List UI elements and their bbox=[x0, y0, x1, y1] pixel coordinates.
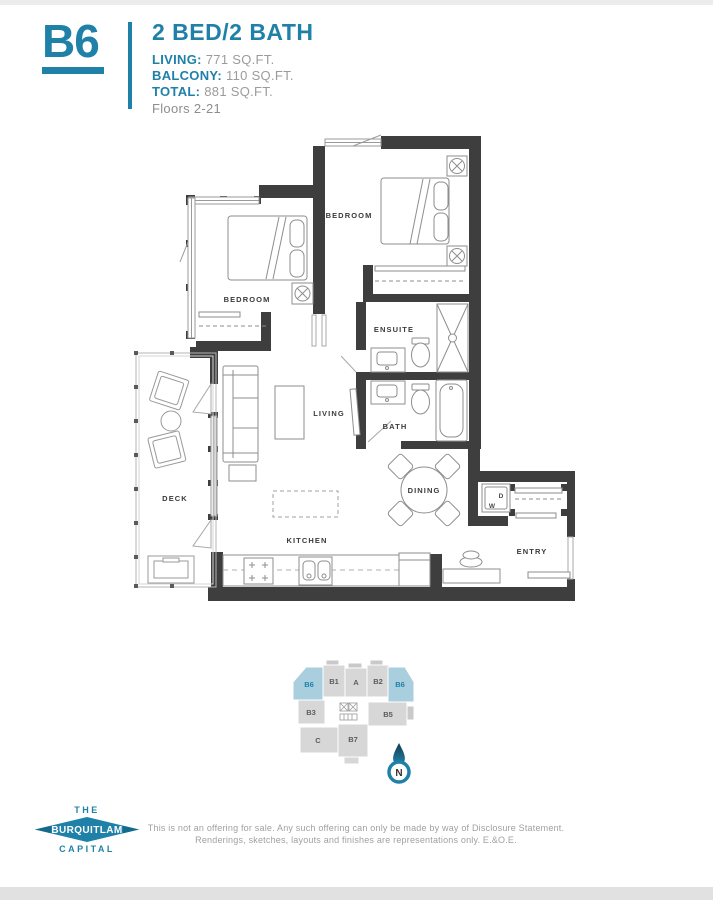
disclaimer-line-2: Renderings, sketches, layouts and finish… bbox=[146, 834, 566, 846]
label-dining: DINING bbox=[408, 486, 441, 495]
deck-door-swing-icon bbox=[193, 520, 211, 548]
keyplan-label-b1: B1 bbox=[329, 677, 339, 686]
fridge-icon bbox=[399, 553, 430, 586]
unit-code-underline bbox=[42, 67, 104, 74]
keyplan-unit-b7-tab bbox=[344, 757, 359, 764]
stat-living: LIVING:771 SQ.FT. bbox=[152, 52, 294, 68]
toilet-icon bbox=[412, 338, 430, 367]
stat-total-label: TOTAL: bbox=[152, 84, 200, 99]
stat-living-label: LIVING: bbox=[152, 52, 202, 67]
ensuite-door-leaf bbox=[341, 356, 356, 372]
keyplan-label-b3: B3 bbox=[306, 708, 316, 717]
unit-stats: LIVING:771 SQ.FT. BALCONY:110 SQ.FT. TOT… bbox=[152, 52, 294, 100]
label-ensuite: ENSUITE bbox=[374, 325, 414, 334]
keyplan-label-b5: B5 bbox=[383, 710, 393, 719]
closet-shelf bbox=[375, 266, 465, 271]
logo-burquitlam: BURQUITLAM bbox=[51, 825, 122, 836]
label-deck: DECK bbox=[162, 494, 188, 503]
stairs-icon bbox=[340, 714, 357, 720]
logo-banner: BURQUITLAM bbox=[35, 816, 139, 843]
header-divider bbox=[128, 22, 132, 109]
label-living: LIVING bbox=[313, 409, 345, 418]
keyplan-label-b7: B7 bbox=[348, 735, 358, 744]
disclaimer-line-1: This is not an offering for sale. Any su… bbox=[146, 822, 566, 834]
bed-icon bbox=[228, 216, 307, 280]
furniture bbox=[199, 156, 570, 586]
toilet-icon bbox=[412, 384, 430, 414]
keyplan-label-b6-left: B6 bbox=[304, 680, 314, 689]
label-dryer: D bbox=[499, 493, 504, 500]
keyplan-core bbox=[340, 703, 357, 720]
stat-balcony: BALCONY:110 SQ.FT. bbox=[152, 68, 294, 84]
disclaimer: This is not an offering for sale. Any su… bbox=[146, 822, 566, 846]
bathtub-icon bbox=[436, 380, 467, 441]
ottoman-icon bbox=[229, 465, 256, 481]
label-bedroom-left: BEDROOM bbox=[224, 295, 271, 304]
keyplan-label-b2: B2 bbox=[373, 677, 383, 686]
coffee-table-icon bbox=[275, 386, 304, 439]
vanity-sink-icon bbox=[371, 381, 405, 404]
bedroom-door-leaf bbox=[322, 315, 326, 346]
nightstand-icon bbox=[447, 246, 467, 266]
floors-range: Floors 2-21 bbox=[152, 101, 221, 116]
label-bath: BATH bbox=[383, 422, 408, 431]
label-washer: W bbox=[489, 503, 496, 510]
stat-total-value: 881 SQ.FT. bbox=[204, 84, 273, 99]
stat-living-value: 771 SQ.FT. bbox=[206, 52, 275, 67]
closet-shelf bbox=[199, 312, 240, 317]
entry-bench bbox=[528, 572, 570, 578]
stat-total: TOTAL:881 SQ.FT. bbox=[152, 84, 294, 100]
stat-balcony-label: BALCONY: bbox=[152, 68, 222, 83]
bed-icon bbox=[381, 178, 449, 244]
stove-icon bbox=[244, 558, 273, 584]
label-kitchen: KITCHEN bbox=[286, 536, 327, 545]
north-label: N bbox=[395, 768, 402, 779]
room-labels: BEDROOM BEDROOM ENSUITE BATH LIVING DECK… bbox=[162, 211, 547, 556]
north-arrow-icon: N bbox=[389, 743, 409, 782]
keyplan-label-c: C bbox=[315, 736, 321, 745]
deck-area bbox=[134, 351, 216, 588]
logo-capital: CAPITAL bbox=[35, 844, 139, 854]
unit-code: B6 bbox=[42, 14, 99, 68]
deck-table-icon bbox=[161, 411, 181, 431]
top-edge-strip bbox=[0, 0, 713, 5]
deck-chair-icon bbox=[148, 431, 187, 469]
keyplan-label-a: A bbox=[353, 678, 359, 687]
label-entry: ENTRY bbox=[517, 547, 548, 556]
brochure-page: B6 2 BED/2 BATH LIVING:771 SQ.FT. BALCON… bbox=[0, 0, 713, 900]
closet-shelf bbox=[516, 513, 556, 518]
console-table-icon bbox=[443, 551, 500, 583]
nightstand-icon bbox=[447, 156, 467, 176]
unit-type-title: 2 BED/2 BATH bbox=[152, 19, 314, 46]
keyplan-label-b6-right: B6 bbox=[395, 680, 405, 689]
deck-storage-icon bbox=[148, 556, 194, 583]
keyplan-balcony bbox=[407, 706, 414, 720]
bedroom-door-leaf bbox=[312, 315, 316, 346]
deck-door-swing-icon bbox=[193, 384, 211, 414]
closet-shelf bbox=[515, 488, 562, 493]
label-bedroom-right: BEDROOM bbox=[326, 211, 373, 220]
shower-icon bbox=[437, 304, 468, 372]
brand-logo: THE BURQUITLAM CAPITAL bbox=[35, 805, 139, 854]
kitchen-sink-icon bbox=[299, 557, 332, 585]
kitchen-island bbox=[273, 491, 338, 517]
logo-the: THE bbox=[35, 805, 139, 815]
floor-plan: BEDROOM BEDROOM ENSUITE BATH LIVING DECK… bbox=[123, 132, 601, 624]
bottom-edge-strip bbox=[0, 887, 713, 900]
sofa-icon bbox=[223, 366, 258, 462]
building-key-plan: B6 B1 A B2 B6 B3 B5 C B7 N bbox=[288, 656, 420, 796]
stat-balcony-value: 110 SQ.FT. bbox=[226, 68, 294, 83]
nightstand-icon bbox=[292, 283, 313, 304]
deck-chair-icon bbox=[149, 371, 189, 410]
washer-dryer-icon bbox=[482, 484, 510, 512]
vanity-sink-icon bbox=[371, 348, 405, 372]
